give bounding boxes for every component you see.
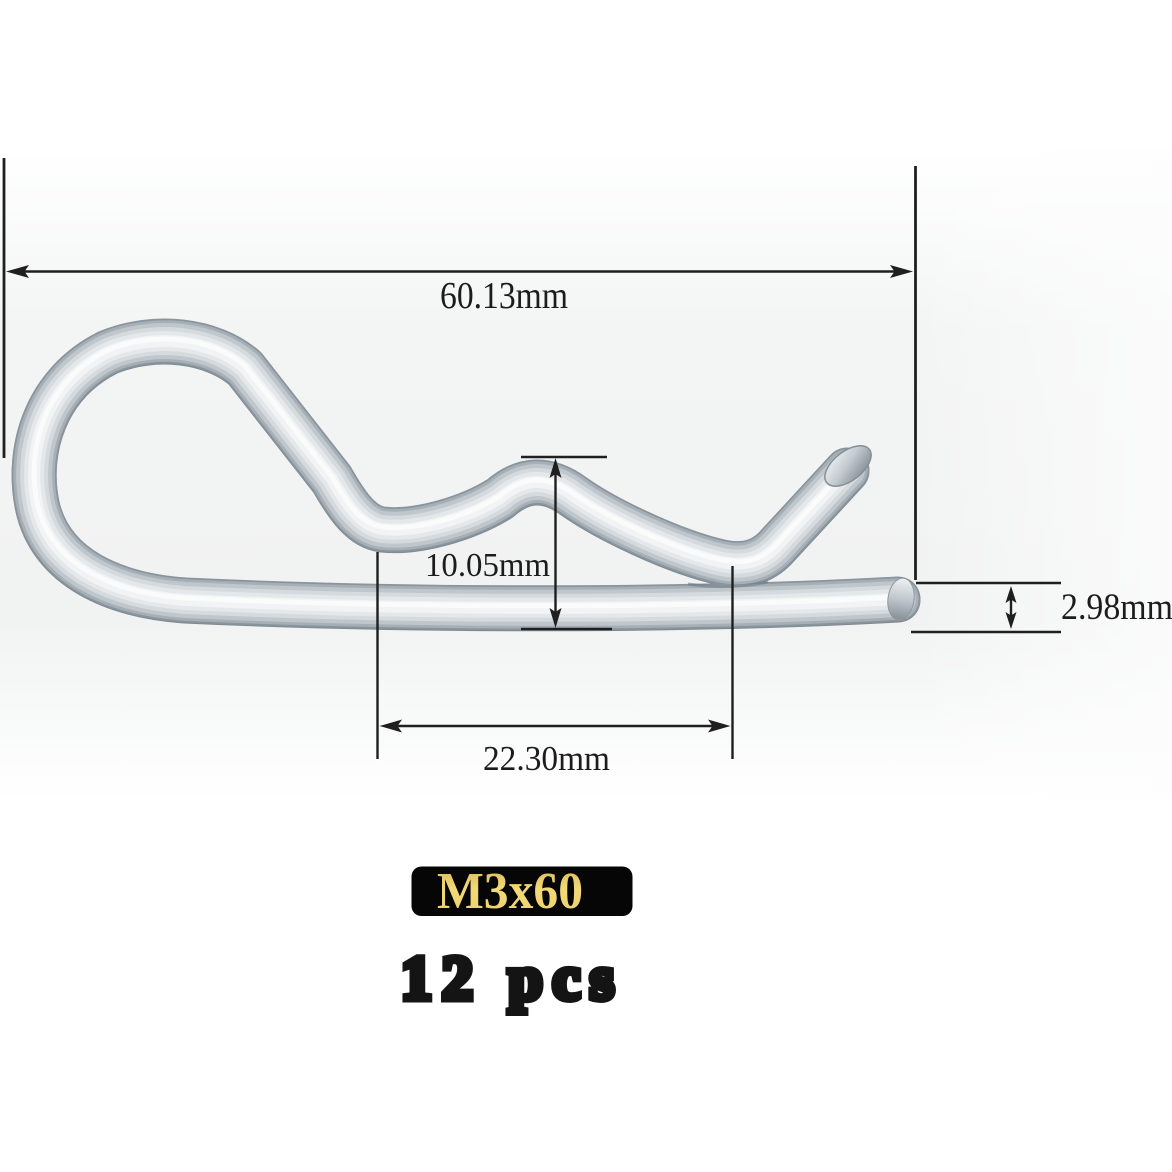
svg-text:2.98mm: 2.98mm: [1061, 587, 1172, 628]
svg-text:10.05mm: 10.05mm: [425, 547, 550, 584]
svg-text:M3x60: M3x60: [437, 863, 583, 920]
svg-text:22.30mm: 22.30mm: [483, 739, 610, 778]
svg-text:60.13mm: 60.13mm: [440, 275, 568, 317]
